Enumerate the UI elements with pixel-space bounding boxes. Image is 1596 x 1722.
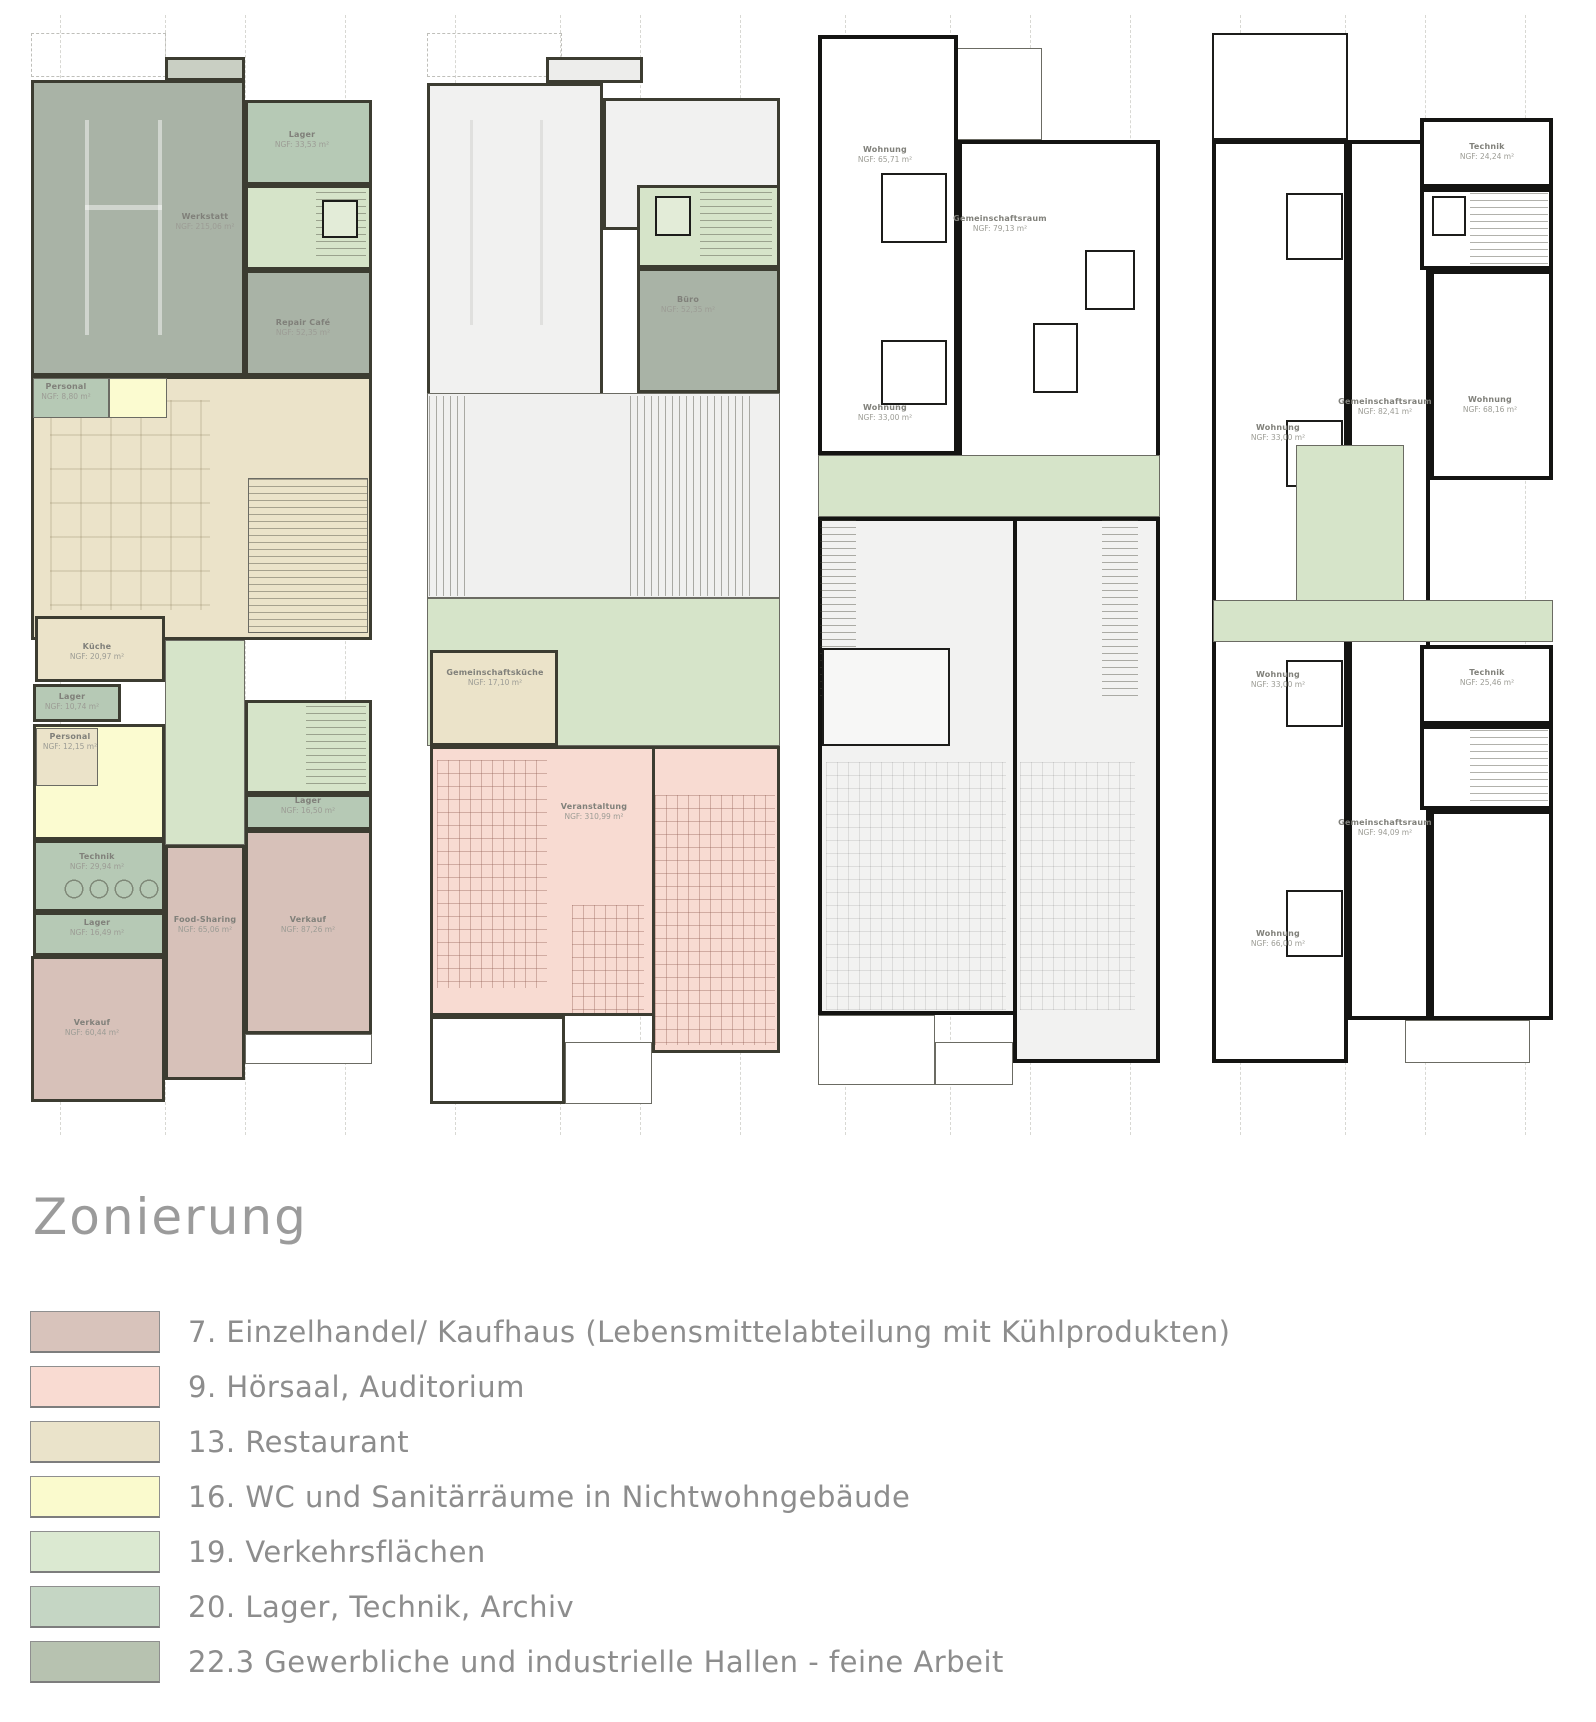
legend-item: 7. Einzelhandel/ Kaufhaus (Lebensmittela… (30, 1310, 1230, 1354)
bad-pod (1286, 660, 1343, 727)
legend-label: 19. Verkehrsflächen (188, 1535, 486, 1569)
legend-label: 9. Hörsaal, Auditorium (188, 1370, 525, 1404)
legend-swatch (30, 1531, 160, 1573)
wohnung-block (1430, 270, 1553, 480)
terrace-band (1213, 600, 1553, 642)
legend-swatch (30, 1311, 160, 1353)
legend-label: 20. Lager, Technik, Archiv (188, 1590, 574, 1624)
legend-swatch (30, 1366, 160, 1408)
elevator (1432, 196, 1466, 236)
legend-item: 22.3 Gewerbliche und industrielle Hallen… (30, 1640, 1230, 1684)
technik-block (1420, 118, 1553, 188)
legend-item: 13. Restaurant (30, 1420, 1230, 1464)
roof-outline (1212, 33, 1348, 140)
zoning-sheet: WerkstattNGF: 215,06 m²LagerNGF: 33,53 m… (0, 0, 1596, 1722)
terrace-step (1405, 1020, 1530, 1063)
legend-item: 20. Lager, Technik, Archiv (30, 1585, 1230, 1629)
wohnung-block (1430, 810, 1553, 1020)
stair (1470, 193, 1548, 265)
legend-label: 16. WC und Sanitärräume in Nichtwohngebä… (188, 1480, 910, 1514)
terrace (1296, 445, 1404, 605)
legend-label: 13. Restaurant (188, 1425, 409, 1459)
legend-label: 7. Einzelhandel/ Kaufhaus (Lebensmittela… (188, 1315, 1230, 1349)
legend-swatch (30, 1476, 160, 1518)
legend-swatch (30, 1641, 160, 1683)
technik-block (1420, 645, 1553, 725)
bad-pod (1286, 193, 1343, 260)
page-title: Zonierung (33, 1188, 308, 1246)
legend-swatch (30, 1421, 160, 1463)
bad-pod (1286, 890, 1343, 957)
legend-item: 19. Verkehrsflächen (30, 1530, 1230, 1574)
legend-item: 9. Hörsaal, Auditorium (30, 1365, 1230, 1409)
zoning-legend: 7. Einzelhandel/ Kaufhaus (Lebensmittela… (30, 1310, 1230, 1695)
legend-label: 22.3 Gewerbliche und industrielle Hallen… (188, 1645, 1004, 1679)
stair (1470, 730, 1548, 805)
legend-swatch (30, 1586, 160, 1628)
legend-item: 16. WC und Sanitärräume in Nichtwohngebä… (30, 1475, 1230, 1519)
